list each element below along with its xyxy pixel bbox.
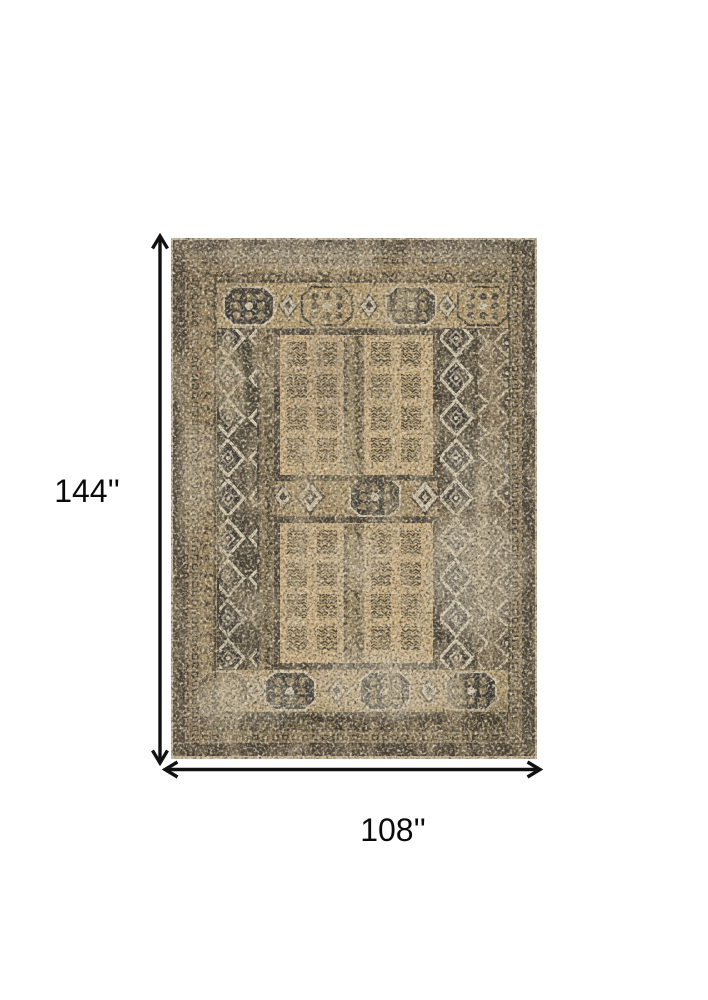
svg-text:144'': 144'' — [54, 473, 120, 509]
svg-text:108'': 108'' — [360, 812, 426, 848]
